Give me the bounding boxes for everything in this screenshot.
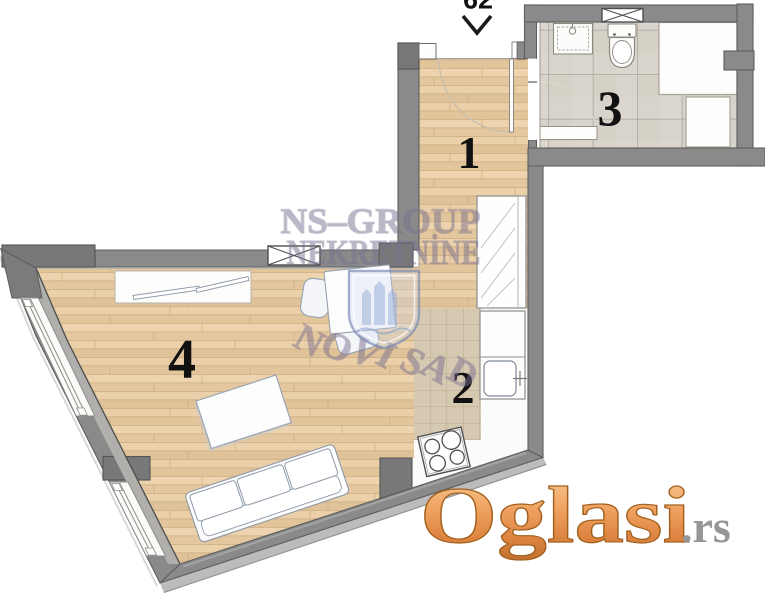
svg-text:3: 3 [598,80,623,136]
svg-text:4: 4 [168,329,196,391]
svg-text:Oglasi: Oglasi [420,472,690,560]
svg-text:62: 62 [463,0,493,15]
svg-text:1: 1 [458,127,481,178]
svg-text:NEKRETNİNE: NEKRETNİNE [287,233,481,272]
svg-text:.rs: .rs [681,501,731,552]
